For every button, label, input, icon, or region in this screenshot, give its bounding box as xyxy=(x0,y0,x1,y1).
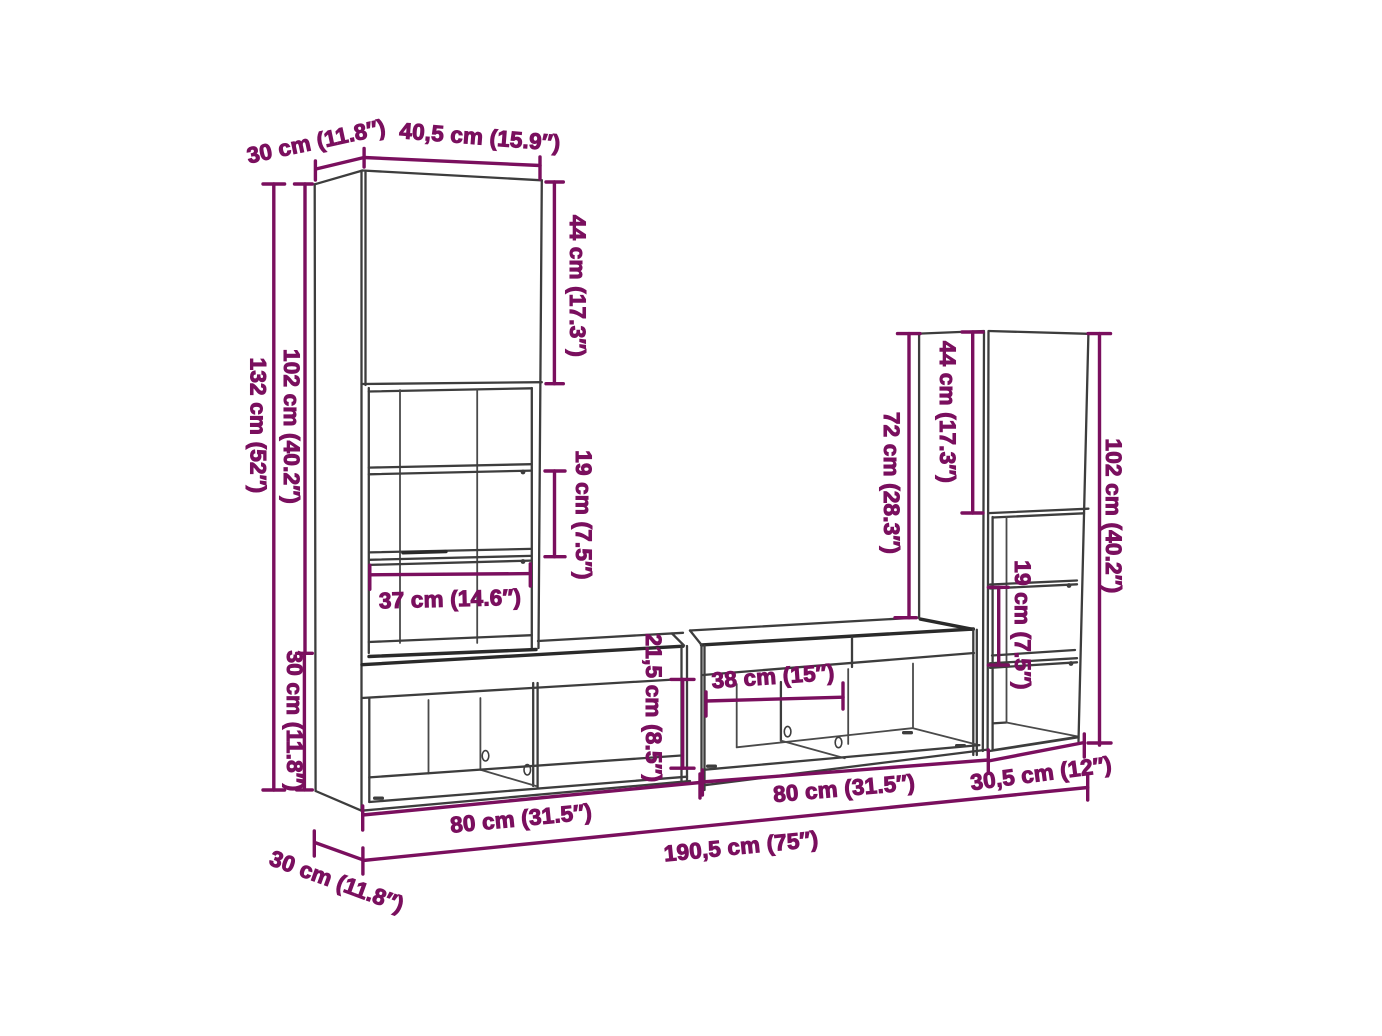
svg-text:132 cm (52″): 132 cm (52″) xyxy=(246,358,271,494)
svg-text:21,5 cm (8.5″): 21,5 cm (8.5″) xyxy=(641,634,666,783)
svg-text:44 cm (17.3″): 44 cm (17.3″) xyxy=(565,215,590,357)
svg-text:72 cm (28.3″): 72 cm (28.3″) xyxy=(879,412,904,554)
svg-text:30 cm (11.8″): 30 cm (11.8″) xyxy=(282,651,307,792)
svg-text:19 cm (7.5″): 19 cm (7.5″) xyxy=(571,450,596,580)
svg-text:44 cm (17.3″): 44 cm (17.3″) xyxy=(935,341,960,483)
svg-text:19 cm (7.5″): 19 cm (7.5″) xyxy=(1010,560,1035,690)
svg-text:37 cm (14.6″): 37 cm (14.6″) xyxy=(379,585,522,614)
svg-text:102 cm (40.2″): 102 cm (40.2″) xyxy=(1101,439,1126,594)
svg-text:102 cm (40.2″): 102 cm (40.2″) xyxy=(279,349,304,504)
